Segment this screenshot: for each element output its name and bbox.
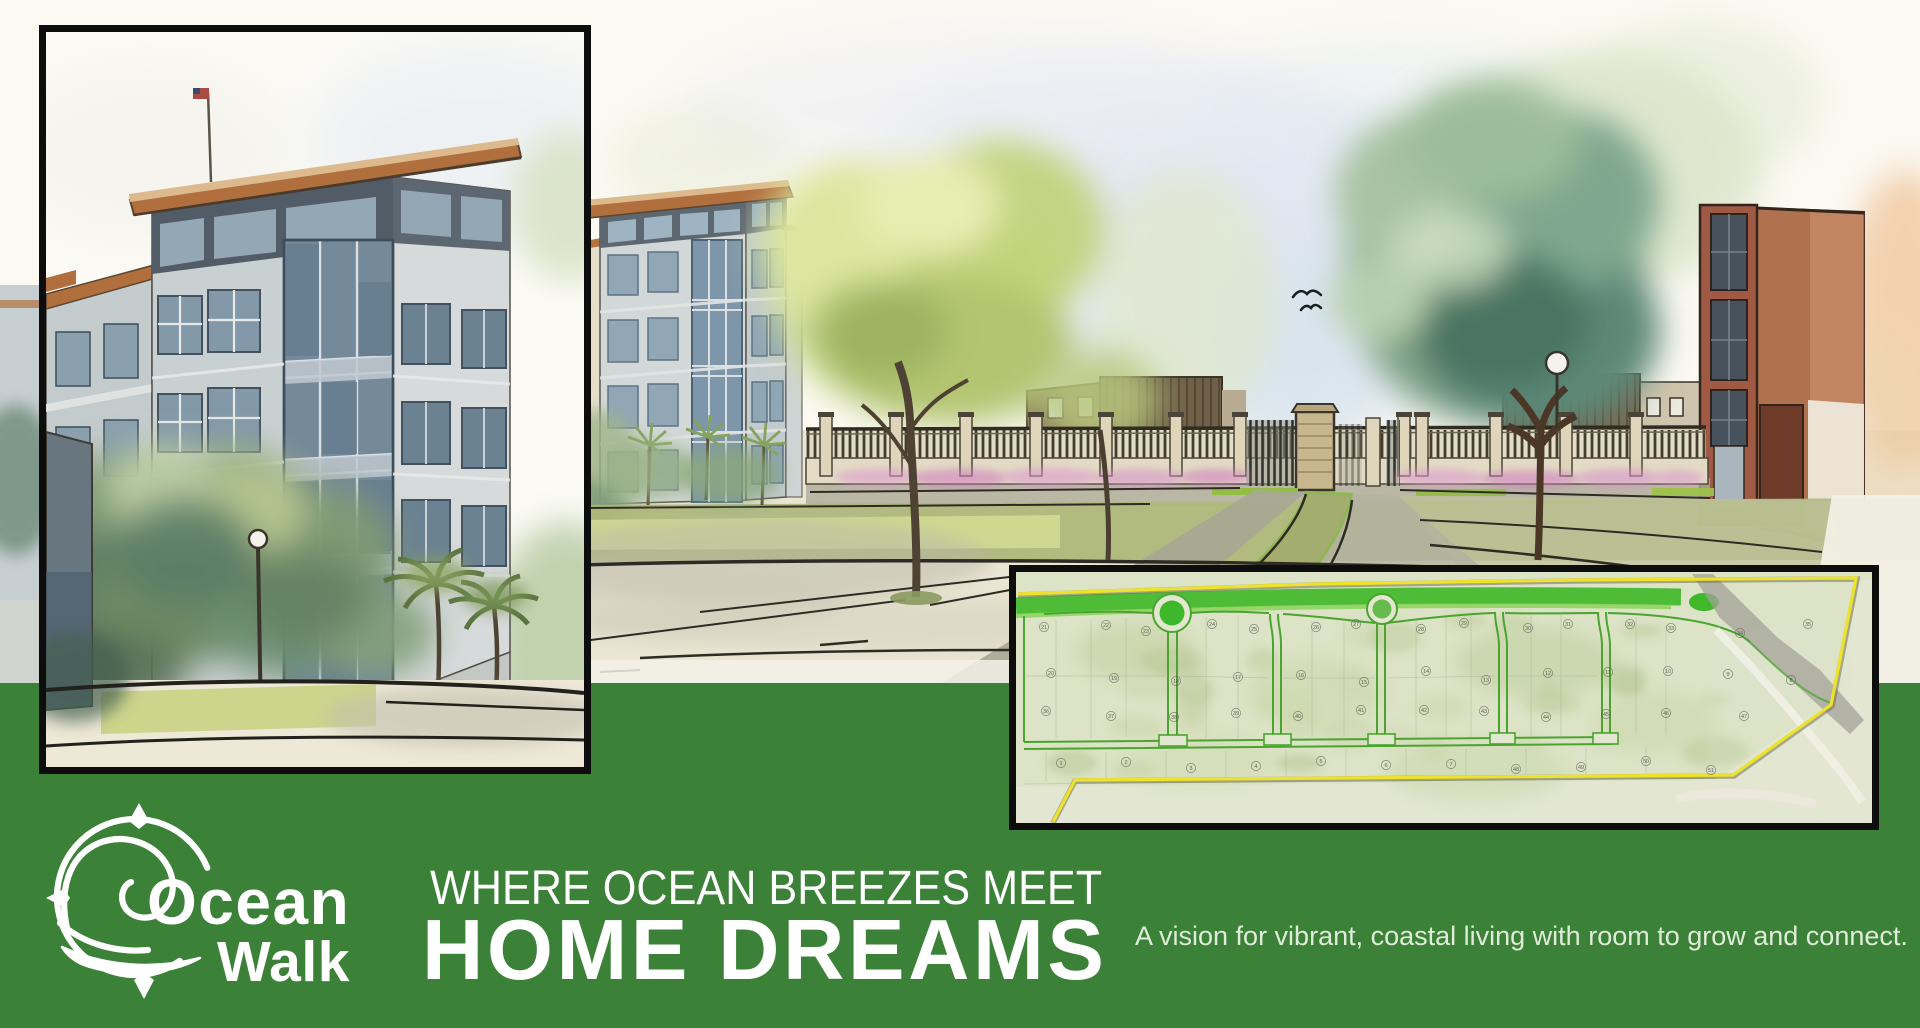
svg-text:19: 19 xyxy=(1111,676,1117,682)
svg-text:2: 2 xyxy=(1124,760,1127,766)
svg-text:24: 24 xyxy=(1209,622,1215,628)
svg-text:37: 37 xyxy=(1108,714,1114,720)
svg-text:15: 15 xyxy=(1361,680,1367,686)
svg-text:45: 45 xyxy=(1603,712,1609,718)
svg-text:42: 42 xyxy=(1421,708,1427,714)
svg-text:17: 17 xyxy=(1235,675,1241,681)
svg-text:13: 13 xyxy=(1483,678,1489,684)
svg-text:5: 5 xyxy=(1319,759,1322,765)
svg-text:28: 28 xyxy=(1418,627,1424,633)
svg-text:3: 3 xyxy=(1189,766,1192,772)
svg-text:7: 7 xyxy=(1449,762,1452,768)
svg-text:46: 46 xyxy=(1663,711,1669,717)
svg-text:44: 44 xyxy=(1543,715,1549,721)
svg-text:11: 11 xyxy=(1605,670,1611,676)
svg-text:6: 6 xyxy=(1384,763,1387,769)
svg-text:4: 4 xyxy=(1254,764,1257,770)
svg-text:48: 48 xyxy=(1513,767,1519,773)
svg-text:38: 38 xyxy=(1171,715,1177,721)
svg-text:31: 31 xyxy=(1565,622,1571,628)
svg-text:40: 40 xyxy=(1295,714,1301,720)
svg-text:16: 16 xyxy=(1298,673,1304,679)
svg-text:9: 9 xyxy=(1726,672,1729,678)
svg-text:10: 10 xyxy=(1665,669,1671,675)
svg-text:27: 27 xyxy=(1353,622,1359,628)
svg-text:12: 12 xyxy=(1545,671,1551,677)
svg-text:51: 51 xyxy=(1708,768,1714,774)
svg-text:14: 14 xyxy=(1423,669,1429,675)
svg-text:29: 29 xyxy=(1461,621,1467,627)
svg-text:30: 30 xyxy=(1525,626,1531,632)
svg-text:50: 50 xyxy=(1643,759,1649,765)
svg-text:47: 47 xyxy=(1741,714,1747,720)
svg-text:43: 43 xyxy=(1481,709,1487,715)
svg-text:35: 35 xyxy=(1805,622,1811,628)
svg-text:20: 20 xyxy=(1048,671,1054,677)
svg-text:41: 41 xyxy=(1358,708,1364,714)
svg-text:21: 21 xyxy=(1041,625,1047,631)
svg-text:18: 18 xyxy=(1173,679,1179,685)
svg-text:26: 26 xyxy=(1313,625,1319,631)
svg-text:33: 33 xyxy=(1668,626,1674,632)
svg-text:25: 25 xyxy=(1251,627,1257,633)
svg-text:32: 32 xyxy=(1627,622,1633,628)
svg-text:49: 49 xyxy=(1578,765,1584,771)
svg-text:22: 22 xyxy=(1103,623,1109,629)
svg-text:34: 34 xyxy=(1737,631,1743,637)
svg-text:23: 23 xyxy=(1143,629,1149,635)
svg-text:1: 1 xyxy=(1059,761,1062,767)
svg-text:36: 36 xyxy=(1043,709,1049,715)
svg-text:8: 8 xyxy=(1789,678,1792,684)
svg-text:39: 39 xyxy=(1233,711,1239,717)
